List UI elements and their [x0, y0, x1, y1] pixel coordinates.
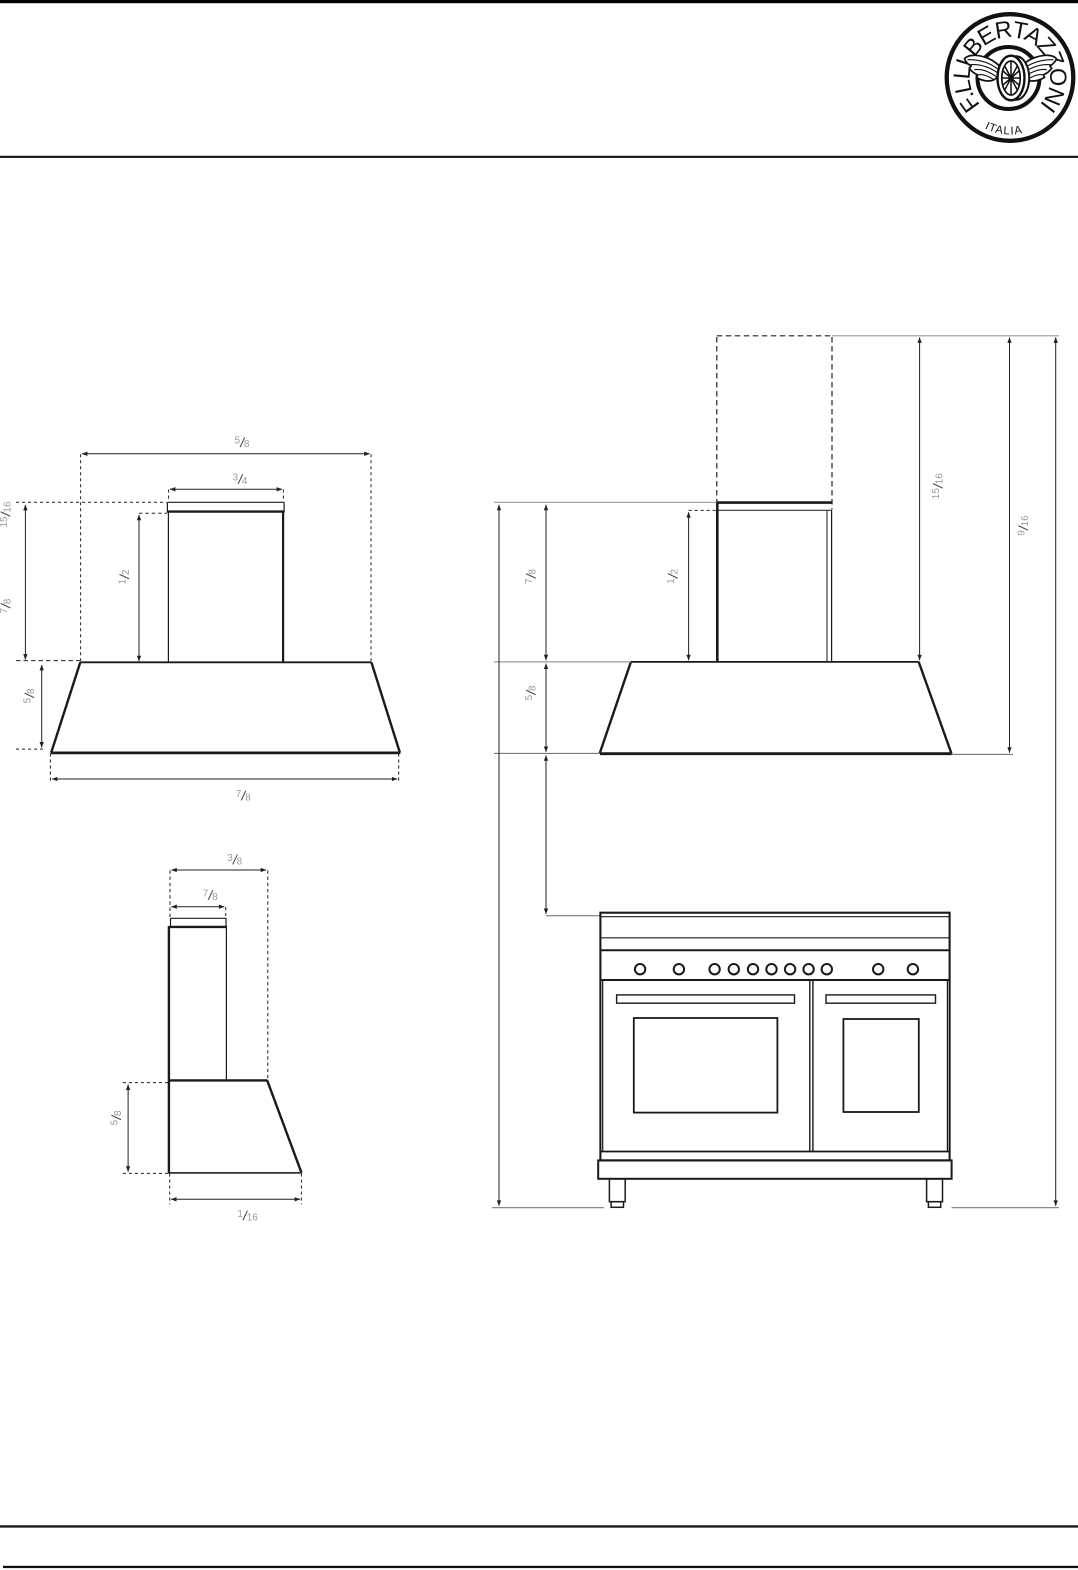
svg-text:7/8: 7/8 — [0, 598, 14, 613]
svg-text:15/16: 15/16 — [930, 473, 946, 499]
svg-text:3/4: 3/4 — [233, 471, 248, 487]
svg-text:3/8: 3/8 — [227, 851, 242, 867]
svg-text:1/2: 1/2 — [116, 569, 132, 584]
svg-text:7/8: 7/8 — [523, 569, 539, 584]
svg-text:5/8: 5/8 — [108, 1110, 124, 1125]
svg-text:15/16: 15/16 — [0, 501, 14, 527]
svg-text:1/2: 1/2 — [665, 569, 681, 584]
svg-text:1/16: 1/16 — [237, 1207, 258, 1223]
svg-text:5/8: 5/8 — [21, 688, 37, 703]
svg-text:9/16: 9/16 — [1015, 515, 1031, 536]
svg-text:7/8: 7/8 — [236, 787, 251, 803]
svg-text:5/8: 5/8 — [523, 685, 539, 700]
svg-text:5/8: 5/8 — [235, 434, 250, 450]
svg-text:7/8: 7/8 — [203, 887, 218, 903]
